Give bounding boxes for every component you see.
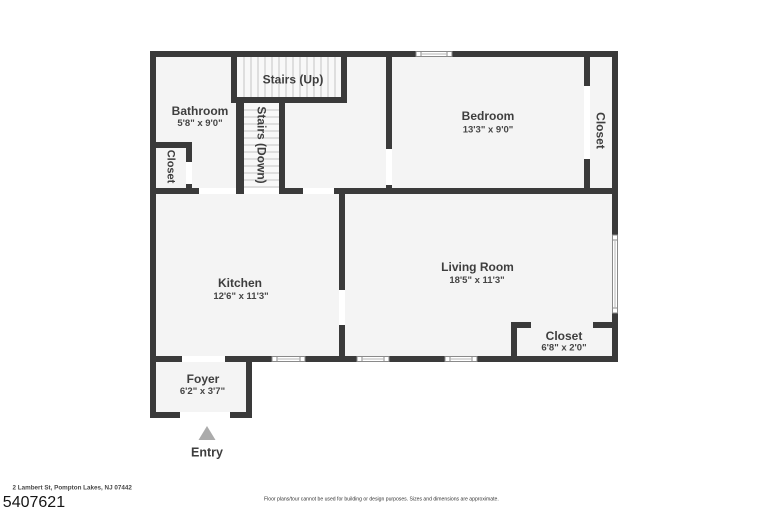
svg-text:Stairs (Up): Stairs (Up): [263, 73, 324, 87]
svg-text:Entry: Entry: [191, 446, 223, 460]
svg-text:13'3" x 9'0": 13'3" x 9'0": [463, 125, 514, 136]
svg-text:18'5" x 11'3": 18'5" x 11'3": [449, 275, 504, 286]
svg-text:Living Room: Living Room: [441, 260, 514, 274]
svg-text:5407621: 5407621: [3, 494, 65, 511]
svg-text:Bedroom: Bedroom: [462, 109, 515, 123]
svg-text:5'8" x 9'0": 5'8" x 9'0": [177, 118, 222, 129]
svg-text:Foyer: Foyer: [187, 372, 220, 386]
svg-text:Bathroom: Bathroom: [172, 104, 229, 118]
svg-text:6'8" x 2'0": 6'8" x 2'0": [541, 343, 586, 354]
svg-text:6'2" x 3'7": 6'2" x 3'7": [180, 386, 225, 397]
svg-text:2 Lambert St, Pompton Lakes, N: 2 Lambert St, Pompton Lakes, NJ 07442: [13, 484, 133, 491]
svg-text:Closet: Closet: [546, 329, 583, 343]
svg-text:Closet: Closet: [594, 112, 608, 149]
svg-text:Closet: Closet: [165, 150, 177, 184]
svg-text:12'6" x 11'3": 12'6" x 11'3": [213, 291, 268, 302]
svg-text:Stairs (Down): Stairs (Down): [255, 106, 269, 183]
svg-text:Floor plans/tour cannot be use: Floor plans/tour cannot be used for buil…: [264, 497, 499, 503]
svg-text:Kitchen: Kitchen: [218, 276, 262, 290]
